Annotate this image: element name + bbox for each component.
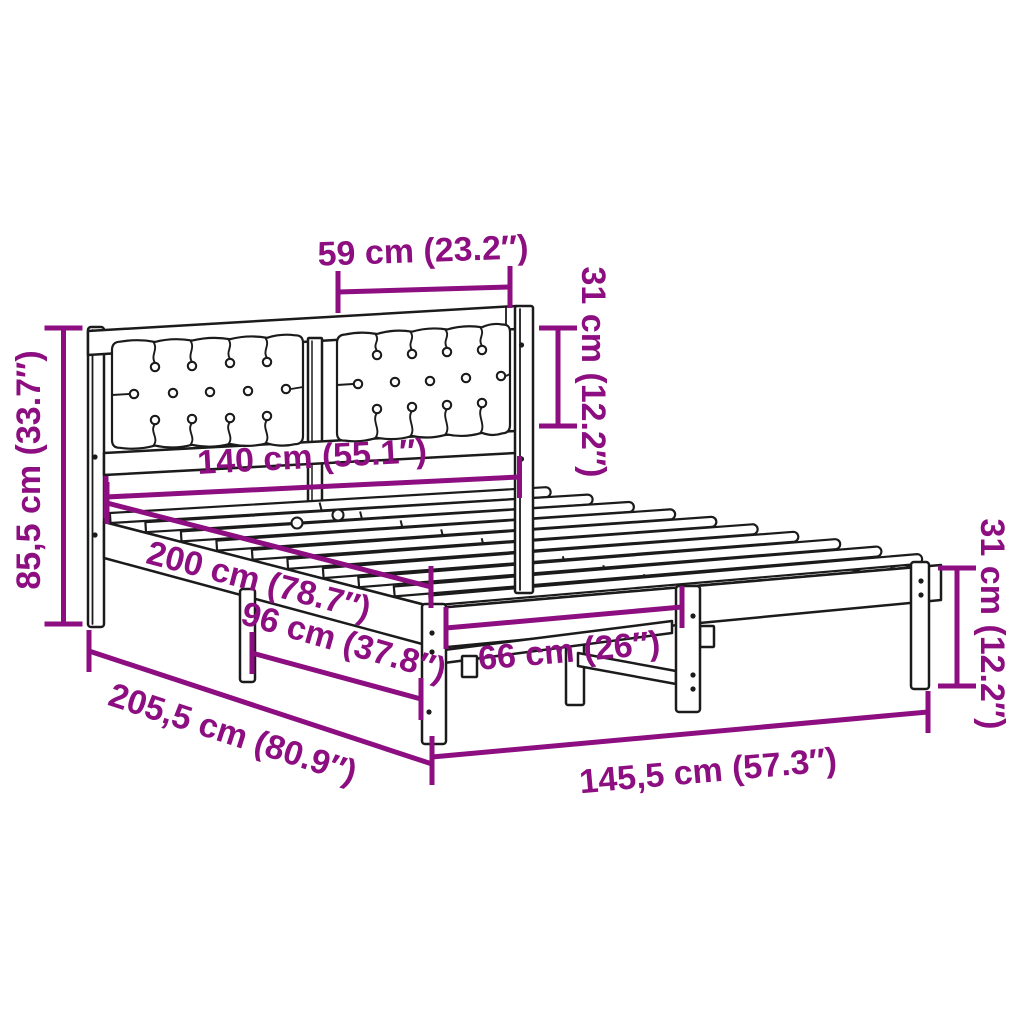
svg-text:59 cm (23.2″): 59 cm (23.2″) [317, 228, 529, 273]
svg-text:31 cm (12.2″): 31 cm (12.2″) [973, 519, 1011, 730]
svg-text:31 cm (12.2″): 31 cm (12.2″) [574, 267, 612, 478]
svg-text:85,5 cm (33.7″): 85,5 cm (33.7″) [10, 350, 48, 589]
